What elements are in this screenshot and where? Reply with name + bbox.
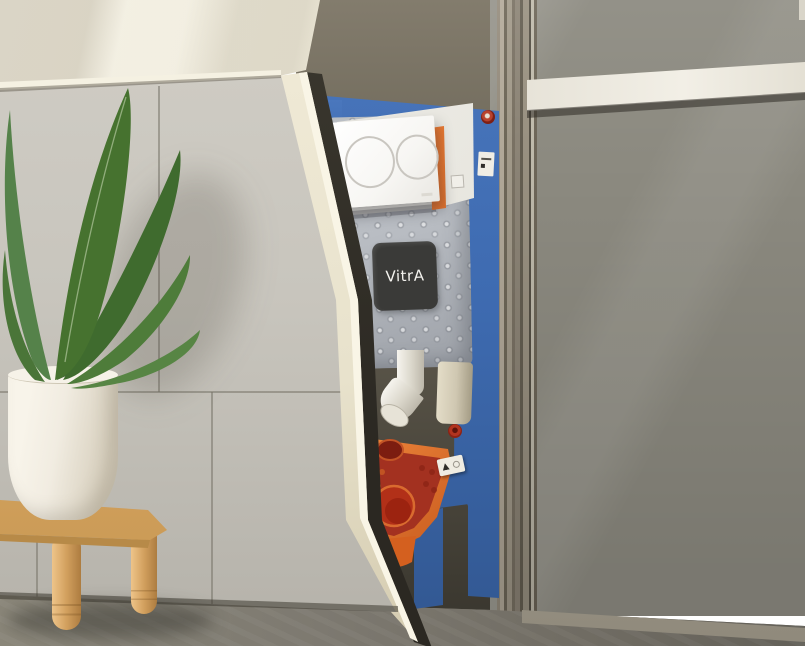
red-fitting [448, 424, 462, 438]
scene-root: VitrA [0, 0, 805, 655]
inspection-square [451, 175, 465, 189]
flush-button-large [343, 134, 397, 190]
stool-floor-shadow [8, 602, 213, 638]
tag-hole [452, 460, 460, 468]
plant-pot [8, 372, 118, 520]
brand-badge: VitrA [372, 241, 438, 311]
warning-triangle-icon [441, 462, 449, 470]
potted-plant [0, 62, 235, 392]
bracket-hole-small [377, 440, 403, 460]
label-line [481, 158, 491, 161]
bottom-margin [0, 646, 805, 655]
bracket-hole-depth [385, 498, 411, 524]
stool-leg-left [52, 538, 81, 630]
wall-corner-highlight [799, 0, 805, 20]
flush-button-small [394, 133, 440, 181]
tile-seam [211, 392, 213, 606]
spec-label [477, 152, 494, 177]
brand-text: VitrA [385, 266, 425, 285]
red-knob [481, 110, 495, 124]
plate-logo-mark [421, 193, 432, 197]
label-glyph [481, 164, 485, 168]
